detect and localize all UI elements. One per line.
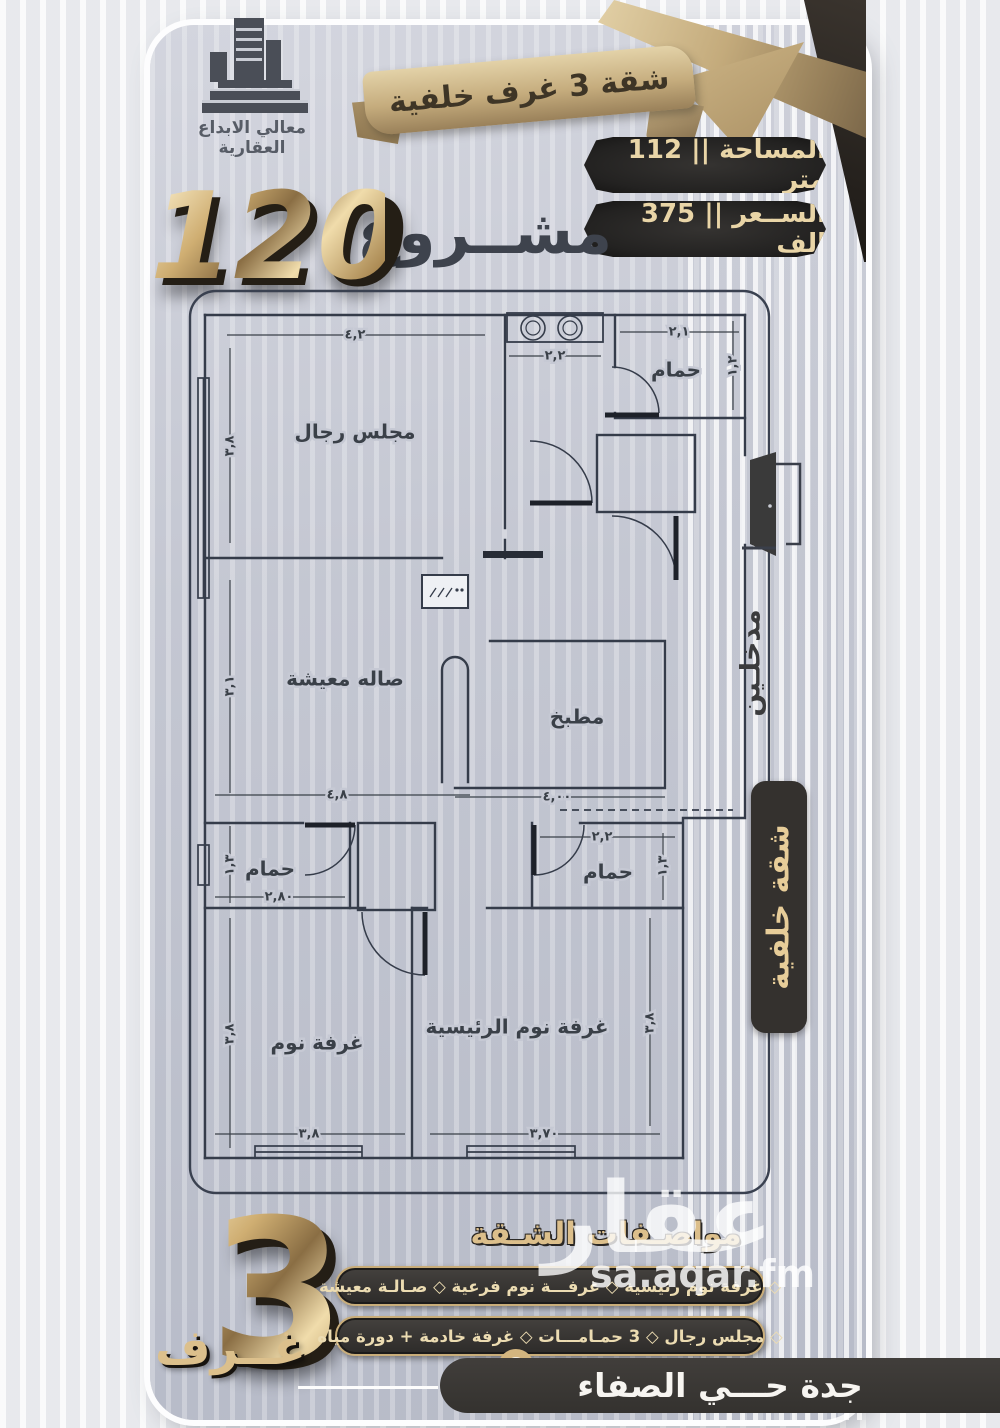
ribbon-band: شقة 3 غرف خلفية [362, 44, 696, 137]
room-bedroom: غرفة نوم [271, 1031, 364, 1055]
back-apartment-badge: شقة خلفية [751, 781, 807, 1033]
specs-row-2-text: ◇ مجلس رجال ◇ 3 حمـامـــات ◇ غرفة خادمة … [317, 1327, 782, 1346]
poster-page: معالي الابداع العقارية شقة 3 غرف خلفية ا… [0, 0, 1000, 1428]
dim-kitchen-bottom: ٤,٠٠ [543, 790, 572, 805]
price-stat-text: الســعر || 375 الف [584, 199, 826, 259]
dim-majlis-top: ٤,٢ [345, 328, 366, 343]
area-stat-text: المساحة || 112 متر [584, 135, 826, 195]
dim-bath-top-w: ٢,١ [669, 325, 690, 340]
dim-bath-right-top: ٢,٢ [592, 830, 613, 845]
company-name: معالي الابداع العقارية [162, 118, 342, 158]
project-word: مشــروع [372, 198, 612, 268]
dim-master-bottom: ٣,٧٠ [530, 1127, 559, 1142]
watermark-domain: sa.aqar.fm [590, 1252, 820, 1296]
price-stat-pill: الســعر || 375 الف [584, 201, 826, 257]
ribbon-text: شقة 3 غرف خلفية [387, 60, 670, 119]
room-bath-top: حمام [651, 358, 701, 382]
building-logo-icon [162, 14, 342, 118]
room-bath-left: حمام [245, 857, 295, 881]
area-stat-pill: المساحة || 112 متر [584, 137, 826, 193]
dim-master-side: ٣,٨ [643, 1013, 658, 1034]
back-apartment-text: شقة خلفية [762, 824, 797, 990]
windows [198, 378, 575, 1158]
dim-bath-right-side: ١,٣ [656, 856, 671, 877]
room-living: صاله معيشة [286, 667, 404, 691]
footer-accent-line [298, 1386, 438, 1389]
specs-row-2: ◇ مجلس رجال ◇ 3 حمـامـــات ◇ غرفة خادمة … [335, 1316, 765, 1356]
location-text: جدة حـــي الصفاء [577, 1366, 863, 1405]
company-logo: معالي الابداع العقارية [162, 14, 342, 164]
dim-majlis-side: ٣,٨ [223, 436, 238, 457]
project-number: 120 120 [150, 168, 385, 298]
room-majlis: مجلس رجال [295, 420, 416, 444]
room-bath-right: حمام [583, 860, 633, 884]
dim-bedroom-bottom: ٣,٨ [299, 1127, 320, 1142]
room-master: غرفة نوم الرئيسية [425, 1015, 608, 1039]
room-labels: مجلس رجال حمام صاله معيشة مطبخ حمام حمام… [245, 358, 701, 1055]
room-kitchen: مطبخ [550, 705, 604, 729]
dim-basin: ٢,٢ [545, 349, 566, 364]
dim-living-bottom: ٤,٨ [327, 788, 348, 803]
entrance-door-icon [742, 448, 817, 563]
dim-bath-left-bottom: ٢,٨٠ [265, 890, 294, 905]
floor-plan-drawing: مجلس رجال حمام صاله معيشة مطبخ حمام حمام… [187, 288, 772, 1196]
project-number-face: 120 [150, 168, 385, 307]
dim-bedroom-side: ٣,٨ [223, 1024, 238, 1045]
location-banner: جدة حـــي الصفاء [440, 1358, 1000, 1413]
dim-bath-top-h: ١,٢ [726, 356, 741, 377]
entrances-text: مدخلـين [736, 609, 767, 716]
dim-bath-left-side: ١,٣ [223, 855, 238, 876]
dim-living-side: ٣,١ [223, 676, 238, 697]
floor-plan: مجلس رجال حمام صاله معيشة مطبخ حمام حمام… [187, 288, 772, 1196]
rooms-count-label: غــرف [138, 1320, 323, 1376]
entrances-label: مدخلـين [724, 568, 778, 758]
